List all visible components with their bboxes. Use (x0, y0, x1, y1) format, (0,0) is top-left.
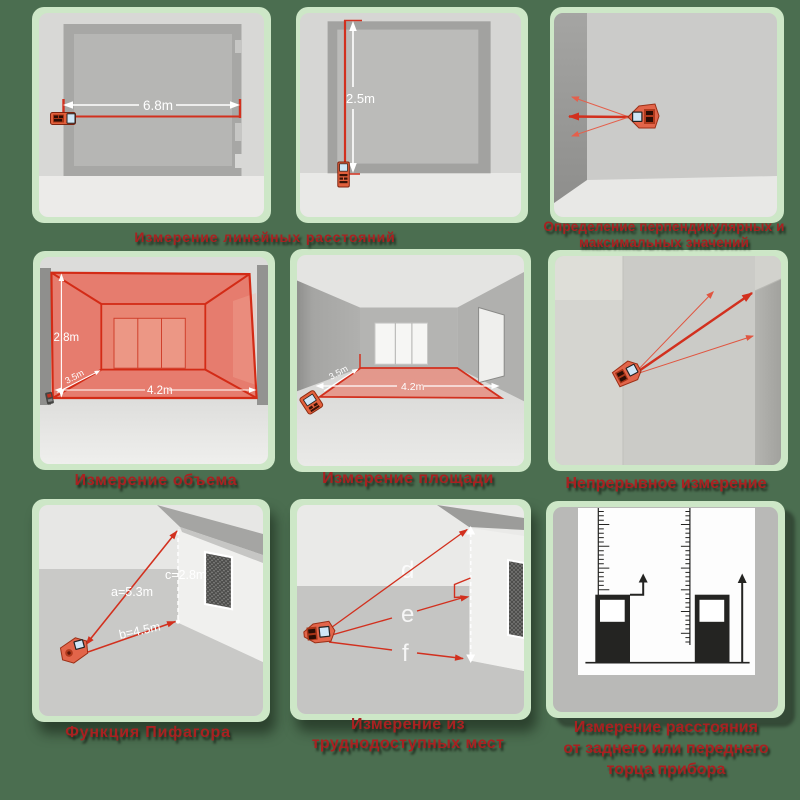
svg-text:4.2m: 4.2m (401, 381, 425, 393)
svg-text:a=5.3m: a=5.3m (111, 585, 153, 599)
svg-text:d: d (401, 557, 414, 584)
svg-text:6.8m: 6.8m (143, 98, 173, 113)
svg-text:2.8m: 2.8m (54, 332, 80, 344)
svg-text:e: e (401, 601, 414, 628)
svg-text:c=2.8m: c=2.8m (165, 568, 206, 582)
svg-text:4.2m: 4.2m (147, 385, 173, 397)
svg-text:2.5m: 2.5m (346, 91, 375, 106)
svg-text:f: f (402, 640, 409, 667)
